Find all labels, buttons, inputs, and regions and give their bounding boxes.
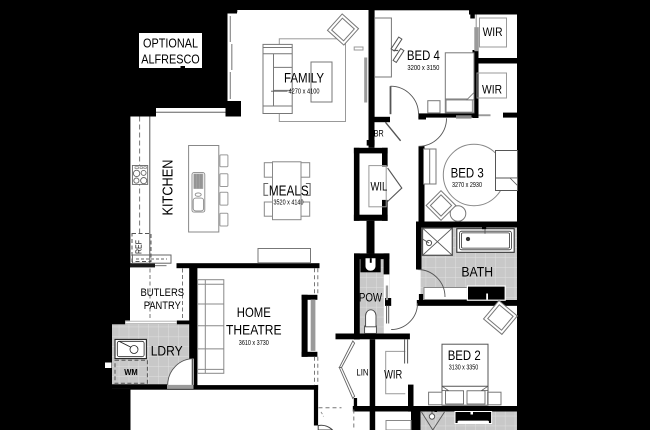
svg-text:BUTLERS: BUTLERS [141, 287, 185, 299]
svg-text:BED 4: BED 4 [407, 47, 440, 63]
svg-text:4270 x 4100: 4270 x 4100 [289, 89, 320, 96]
svg-text:3520 x 4140: 3520 x 4140 [274, 200, 304, 207]
svg-text:WIR: WIR [482, 83, 502, 97]
svg-text:OPTIONAL: OPTIONAL [143, 36, 198, 51]
svg-text:BED 3: BED 3 [451, 164, 484, 180]
svg-text:KITCHEN: KITCHEN [161, 160, 177, 216]
svg-text:WM: WM [124, 368, 138, 377]
svg-text:BATH: BATH [461, 264, 493, 280]
svg-text:LIN: LIN [356, 367, 368, 378]
svg-text:WIL: WIL [371, 182, 388, 194]
svg-text:POW: POW [359, 291, 383, 305]
svg-text:3130 x 3350: 3130 x 3350 [449, 365, 479, 372]
svg-text:THEATRE: THEATRE [226, 322, 282, 338]
svg-text:BED 2: BED 2 [448, 347, 481, 363]
svg-text:MEALS: MEALS [269, 184, 309, 200]
svg-text:WIR: WIR [483, 25, 503, 39]
svg-text:3610 x 3730: 3610 x 3730 [239, 340, 269, 347]
svg-text:LDRY: LDRY [151, 342, 184, 358]
svg-text:3200 x 3150: 3200 x 3150 [407, 65, 439, 72]
svg-text:PANTRY: PANTRY [144, 300, 181, 312]
svg-text:3270 x 2930: 3270 x 2930 [452, 182, 482, 189]
svg-text:FAMILY: FAMILY [284, 71, 324, 86]
svg-text:ALFRESCO: ALFRESCO [141, 52, 200, 67]
svg-text:BR: BR [374, 128, 384, 138]
svg-text:HOME: HOME [237, 304, 271, 320]
svg-text:WIR: WIR [384, 367, 402, 381]
svg-text:REF: REF [134, 240, 144, 254]
